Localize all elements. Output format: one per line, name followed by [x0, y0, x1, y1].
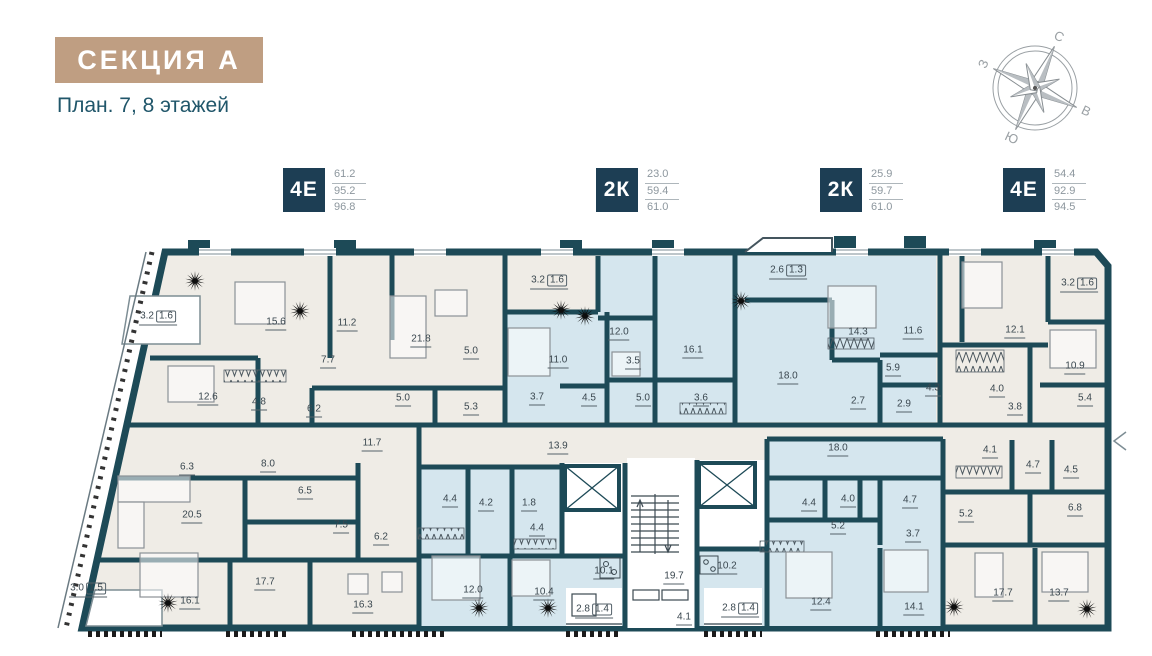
- window-mark: [304, 248, 336, 256]
- compass-direction-label: С: [1052, 27, 1067, 45]
- floor-plan-drawing: СВЮЗ: [0, 0, 1152, 656]
- window-mark: [1042, 248, 1074, 256]
- window-mark: [652, 248, 684, 256]
- compass-direction-label: Ю: [1003, 128, 1021, 147]
- compass-direction-label: З: [975, 57, 992, 71]
- compass-arms: [974, 27, 1096, 149]
- window-mark: [199, 248, 231, 256]
- window-mark: [541, 248, 573, 256]
- window-mark: [949, 248, 981, 256]
- floor-plan-page: СЕКЦИЯ А План. 7, 8 этажей 4Е 61.2 95.2 …: [0, 0, 1152, 656]
- edge-arrow: [1114, 432, 1126, 450]
- compass-direction-label: В: [1079, 102, 1093, 119]
- window-mark: [414, 248, 446, 256]
- window-mark: [836, 248, 868, 256]
